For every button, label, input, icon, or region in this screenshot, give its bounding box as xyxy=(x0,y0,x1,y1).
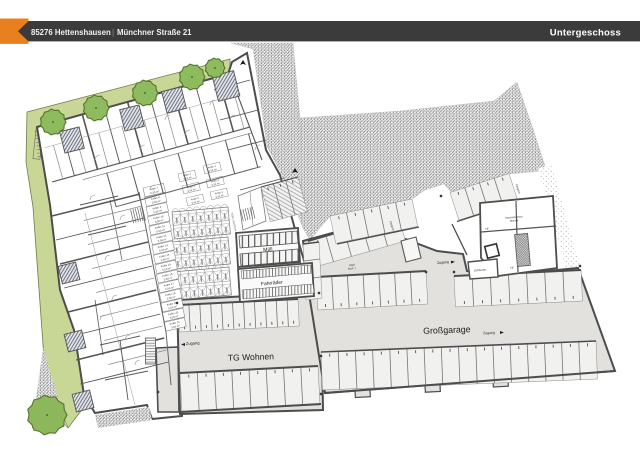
svg-text:Technik: Technik xyxy=(509,218,519,223)
svg-text:85276 Hettenshausen: 85276 Hettenshausen xyxy=(31,28,111,37)
svg-text:NUF 7: NUF 7 xyxy=(348,266,357,270)
svg-text:Zugang: Zugang xyxy=(483,331,495,336)
svg-text:|: | xyxy=(112,28,114,37)
svg-text:Münchner Straße 21: Münchner Straße 21 xyxy=(117,28,192,37)
svg-text:Müll: Müll xyxy=(263,247,273,254)
svg-text:Untergeschoss: Untergeschoss xyxy=(550,27,621,38)
svg-text:Großgarage: Großgarage xyxy=(423,324,471,336)
svg-text:TF: TF xyxy=(510,266,514,270)
svg-text:TG Wohnen: TG Wohnen xyxy=(228,351,275,363)
svg-text:TF: TF xyxy=(485,227,489,231)
svg-text:Zugang: Zugang xyxy=(186,340,200,346)
